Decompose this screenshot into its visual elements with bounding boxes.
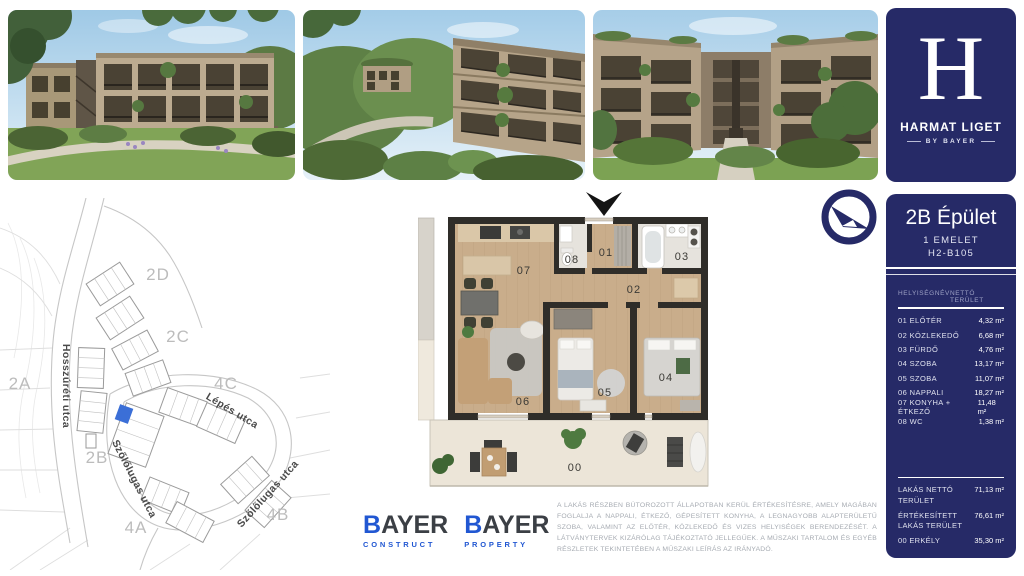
summary-area: 76,61 m² xyxy=(974,511,1004,531)
summary-name: 00 ERKÉLY xyxy=(898,536,940,546)
table-row: 05 SZOBA11,07 m² xyxy=(898,371,1004,385)
room-name: 01 ELŐTÉR xyxy=(898,316,942,325)
bayer-property-subtitle: PROPERTY xyxy=(464,540,528,549)
summary-row: 00 ERKÉLY35,30 m² xyxy=(898,536,1004,546)
header-room-name: HELYISÉGNÉV xyxy=(898,290,950,304)
room-area: 13,17 m² xyxy=(974,359,1004,368)
room-name: 05 SZOBA xyxy=(898,374,937,383)
logo-letter-b: B xyxy=(464,511,482,539)
zone-label-2a: 2A xyxy=(9,374,32,393)
building-render-1 xyxy=(8,10,295,180)
site-plan: 2D 2C 2A 4C 2B 4A 4B Hosszúréti utca Lép… xyxy=(0,198,330,570)
room-name: 06 NAPPALI xyxy=(898,388,944,397)
zone-label-2b: 2B xyxy=(86,448,109,467)
company-logos: BAYER CONSTRUCT BAYER PROPERTY xyxy=(363,513,549,549)
room-name: 03 FÜRDŐ xyxy=(898,345,938,354)
logo-letter-b: B xyxy=(363,511,381,539)
room-area: 11,48 m² xyxy=(978,398,1004,416)
bayer-property-wordmark: BAYER xyxy=(464,513,549,538)
room-label-01: 01 xyxy=(599,247,613,259)
compass-icon xyxy=(819,187,881,249)
room-label-00: 00 xyxy=(568,462,582,474)
room-label-08: 08 xyxy=(565,254,579,266)
room-name: 08 WC xyxy=(898,417,923,426)
disclaimer-text: A LAKÁS RÉSZBEN BÚTOROZOTT ÁLLAPOTBAN KE… xyxy=(557,500,877,555)
room-label-04: 04 xyxy=(659,372,673,384)
summary-area: 71,13 m² xyxy=(974,485,1004,505)
tagline-dash-left xyxy=(907,141,921,142)
table-header-underline xyxy=(898,307,1004,309)
zone-label-2d: 2D xyxy=(146,265,170,284)
building-render-2 xyxy=(303,10,585,180)
summary-name: ÉRTÉKESÍTETT LAKÁS TERÜLET xyxy=(898,511,974,531)
summary-area: 35,30 m² xyxy=(974,536,1004,546)
room-name: 02 KÖZLEKEDŐ xyxy=(898,331,959,340)
table-row: 07 KONYHA + ÉTKEZŐ11,48 m² xyxy=(898,400,1004,414)
summary-name: LAKÁS NETTÓ TERÜLET xyxy=(898,485,974,505)
street-label-hosszureti: Hosszúréti utca xyxy=(60,344,72,428)
building-render-3 xyxy=(593,10,878,180)
divider xyxy=(886,274,1016,275)
room-name: 04 SZOBA xyxy=(898,359,937,368)
room-label-07: 07 xyxy=(517,265,531,277)
room-area: 6,68 m² xyxy=(979,331,1004,340)
bayer-construct-logo: BAYER CONSTRUCT xyxy=(363,513,448,549)
bayer-construct-wordmark: BAYER xyxy=(363,513,448,538)
bayer-construct-subtitle: CONSTRUCT xyxy=(363,540,435,549)
brand-logo-letter: H xyxy=(918,22,984,114)
brand-card: H HARMAT LIGET BY BAYER xyxy=(886,8,1016,182)
unit-floor: 1 EMELET xyxy=(898,235,1004,246)
room-name: 07 KONYHA + ÉTKEZŐ xyxy=(898,398,978,416)
unit-code: H2-B105 xyxy=(898,248,1004,259)
entrance-arrow-icon xyxy=(586,192,622,216)
table-row: 03 FÜRDŐ4,76 m² xyxy=(898,342,1004,356)
room-area: 11,07 m² xyxy=(975,374,1004,383)
brochure-page: H HARMAT LIGET BY BAYER 2B Épület 1 EMEL… xyxy=(0,0,1024,576)
divider xyxy=(886,267,1016,269)
logo-letters: AYER xyxy=(381,511,448,539)
room-area: 18,27 m² xyxy=(974,388,1004,397)
unit-info-card: 2B Épület 1 EMELET H2-B105 HELYISÉGNÉV N… xyxy=(886,194,1016,558)
floor-plan: 07 08 01 03 02 06 05 04 00 xyxy=(418,190,718,500)
zone-label-2c: 2C xyxy=(166,327,190,346)
room-area: 4,32 m² xyxy=(979,316,1004,325)
room-label-05: 05 xyxy=(598,387,612,399)
brand-name: HARMAT LIGET xyxy=(900,120,1002,134)
zone-label-4a: 4A xyxy=(125,518,148,537)
room-table-header: HELYISÉGNÉV NETTÓ TERÜLET xyxy=(898,290,1004,304)
summary-row: ÉRTÉKESÍTETT LAKÁS TERÜLET76,61 m² xyxy=(898,511,1004,531)
brand-tagline: BY BAYER xyxy=(907,138,995,145)
zone-label-4c: 4C xyxy=(214,374,238,393)
header-net-area: NETTÓ TERÜLET xyxy=(950,290,1004,304)
room-label-02: 02 xyxy=(627,284,641,296)
room-area: 1,38 m² xyxy=(979,417,1004,426)
table-row: 02 KÖZLEKEDŐ6,68 m² xyxy=(898,328,1004,342)
zone-label-4b: 4B xyxy=(267,505,290,524)
summary-row: LAKÁS NETTÓ TERÜLET71,13 m² xyxy=(898,485,1004,505)
tagline-text: BY BAYER xyxy=(926,138,976,145)
bayer-property-logo: BAYER PROPERTY xyxy=(464,513,549,549)
unit-building-title: 2B Épület xyxy=(898,206,1004,230)
table-row: 08 WC1,38 m² xyxy=(898,414,1004,428)
room-label-03: 03 xyxy=(675,251,689,263)
logo-letters: AYER xyxy=(482,511,549,539)
room-label-06: 06 xyxy=(516,396,530,408)
table-row: 01 ELŐTÉR4,32 m² xyxy=(898,314,1004,328)
summary-divider xyxy=(898,477,1004,479)
tagline-dash-right xyxy=(981,141,995,142)
table-row: 04 SZOBA13,17 m² xyxy=(898,357,1004,371)
room-area: 4,76 m² xyxy=(979,345,1004,354)
room-table: 01 ELŐTÉR4,32 m² 02 KÖZLEKEDŐ6,68 m² 03 … xyxy=(898,314,1004,429)
area-summary: LAKÁS NETTÓ TERÜLET71,13 m² ÉRTÉKESÍTETT… xyxy=(898,477,1004,558)
